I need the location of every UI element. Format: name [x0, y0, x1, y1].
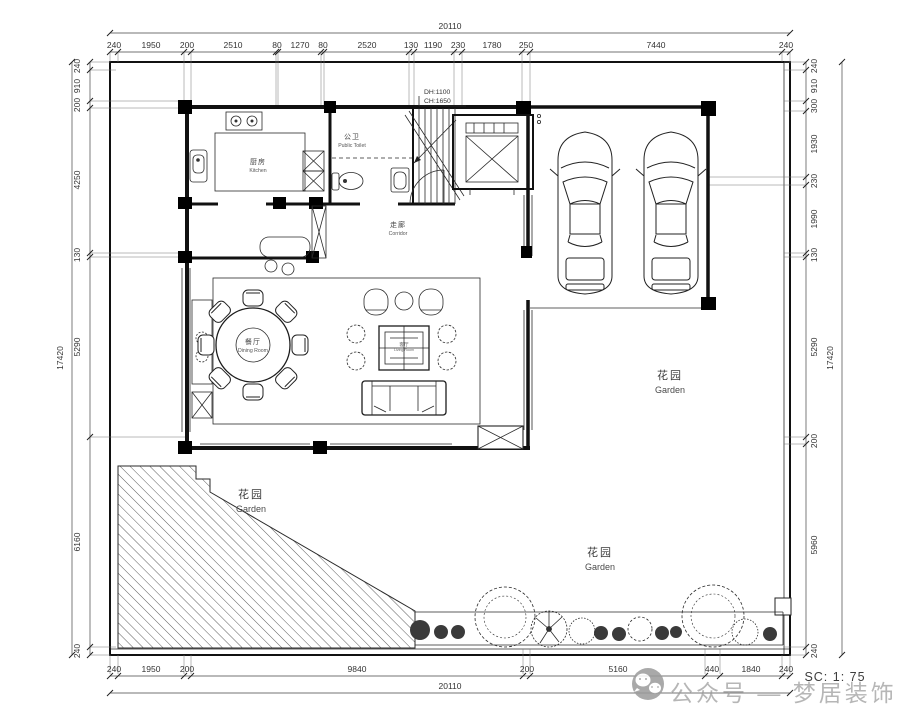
- dim-label: 200: [520, 664, 534, 674]
- stool: [347, 325, 365, 343]
- dim-label: 6160: [72, 532, 82, 551]
- armchair: [364, 289, 388, 315]
- dim-label: 130: [809, 248, 819, 262]
- dim-label: 1780: [483, 40, 502, 50]
- dim-label: 240: [779, 664, 793, 674]
- dim-label: 130: [404, 40, 418, 50]
- dim-label: 200: [809, 434, 819, 448]
- car-icon: [636, 132, 706, 294]
- sideboard: [192, 300, 212, 418]
- stairs-note-ch: CH:1650: [424, 98, 451, 105]
- garden-zh: 花园: [587, 546, 613, 559]
- dim-label: 200: [180, 664, 194, 674]
- kitchen-room: 厨房 Kitchen: [190, 112, 324, 191]
- corridor-label-zh: 走廊: [390, 220, 406, 229]
- sofa: [362, 381, 446, 415]
- planting-strip: [410, 585, 783, 647]
- dimension-left: 240 910 200 4250 130 5290 6160 240 17420: [55, 59, 93, 658]
- dim-label: 5290: [809, 337, 819, 356]
- garden-en: Garden: [585, 562, 615, 572]
- toilet-icon: [332, 173, 363, 191]
- corridor: 走廊 Corridor: [260, 206, 408, 275]
- dim-top-total: 20110: [438, 21, 461, 31]
- garden-zh: 花园: [657, 369, 683, 382]
- dim-label: 80: [318, 40, 328, 50]
- stove-icon: [226, 112, 262, 130]
- dim-label: 200: [72, 98, 82, 112]
- floor-plan-page: 20110 240 1950 200 2510 80 1270 80 2520 …: [0, 0, 899, 717]
- stool: [347, 352, 365, 370]
- paved-area: [118, 466, 415, 648]
- toilet-sink-icon: [391, 168, 409, 192]
- dim-label: 240: [107, 664, 121, 674]
- dim-label: 1950: [142, 664, 161, 674]
- kitchen-sink-icon: [190, 150, 207, 182]
- dim-label: 250: [519, 40, 533, 50]
- dimension-right: 240 910 300 1930 230 1990 130 5290 200 5…: [803, 59, 845, 658]
- garden-en: Garden: [236, 504, 266, 514]
- dining-label-zh: 餐厅: [245, 337, 261, 346]
- dim-label: 440: [705, 664, 719, 674]
- kitchen-label-en: Kitchen: [249, 168, 266, 174]
- stool: [438, 325, 456, 343]
- side-table: [395, 292, 413, 310]
- wechat-icon: [632, 668, 664, 700]
- dim-label: 1190: [424, 40, 443, 50]
- window-seat: [478, 426, 523, 449]
- dim-label: 240: [809, 59, 819, 73]
- structural-columns: [178, 100, 716, 454]
- dim-label: 5290: [72, 337, 82, 356]
- dim-label: 5960: [809, 535, 819, 554]
- dim-label: 130: [72, 248, 82, 262]
- garden-label-right: 花园 Garden: [655, 369, 685, 395]
- living-area: 客厅 Living Room: [347, 289, 523, 449]
- corridor-label-en: Corridor: [389, 231, 408, 237]
- dim-bottom-total: 20110: [438, 681, 461, 691]
- garden-en: Garden: [655, 385, 685, 395]
- dim-label: 300: [809, 99, 819, 113]
- dim-label: 1990: [809, 209, 819, 228]
- dim-label: 9840: [348, 664, 367, 674]
- garden-label-bottom-middle: 花园 Garden: [585, 546, 615, 572]
- elevator-shaft: [453, 115, 533, 195]
- stairs-note-dh: DH:1100: [424, 89, 451, 96]
- kitchen-label-zh: 厨房: [250, 157, 266, 166]
- dim-left-total: 17420: [55, 346, 65, 370]
- bar-counter: [260, 237, 310, 275]
- armchair: [419, 289, 443, 315]
- dim-label: 7440: [647, 40, 666, 50]
- tree-icon: [531, 611, 567, 647]
- toilet-label-zh: 公卫: [344, 133, 360, 141]
- tall-cabinet: [312, 206, 326, 258]
- dining-label-en: Dining Room: [238, 348, 268, 354]
- dim-label: 2520: [358, 40, 377, 50]
- dim-label: 4250: [72, 170, 82, 189]
- kitchen-cabinet: [303, 151, 324, 191]
- dim-label: 230: [809, 174, 819, 188]
- dim-label: 1950: [142, 40, 161, 50]
- dining-room: 餐厅 Dining Room: [192, 278, 480, 424]
- garden-zh: 花园: [238, 488, 264, 501]
- car-icon: [550, 132, 620, 294]
- dim-label: 240: [779, 40, 793, 50]
- dim-label: 1840: [742, 664, 761, 674]
- dim-label: 230: [451, 40, 465, 50]
- floor-plan-drawing: 20110 240 1950 200 2510 80 1270 80 2520 …: [0, 0, 899, 717]
- living-label-zh: 客厅: [399, 341, 409, 348]
- stool: [438, 352, 456, 370]
- watermark-text: 公众号 — 梦居装饰: [670, 680, 897, 706]
- toilet-label-en: Public Toilet: [338, 143, 366, 149]
- living-label-en: Living Room: [394, 348, 414, 352]
- door-swing: [410, 170, 444, 204]
- dim-label: 5160: [609, 664, 628, 674]
- dim-label: 910: [809, 79, 819, 93]
- garage: [537, 114, 706, 294]
- toilet-room: 公卫 Public Toilet: [332, 133, 444, 204]
- dim-label: 240: [72, 644, 82, 658]
- dim-label: 910: [72, 79, 82, 93]
- dim-label: 80: [272, 40, 282, 50]
- dim-label: 240: [107, 40, 121, 50]
- dim-label: 240: [809, 644, 819, 658]
- dim-right-total: 17420: [825, 346, 835, 370]
- dimension-top: 20110 240 1950 200 2510 80 1270 80 2520 …: [107, 21, 793, 55]
- dim-label: 1270: [291, 40, 310, 50]
- dim-label: 1930: [809, 134, 819, 153]
- dim-label: 2510: [224, 40, 243, 50]
- dim-label: 200: [180, 40, 194, 50]
- garden-label-bottom-left: 花园 Garden: [236, 488, 266, 514]
